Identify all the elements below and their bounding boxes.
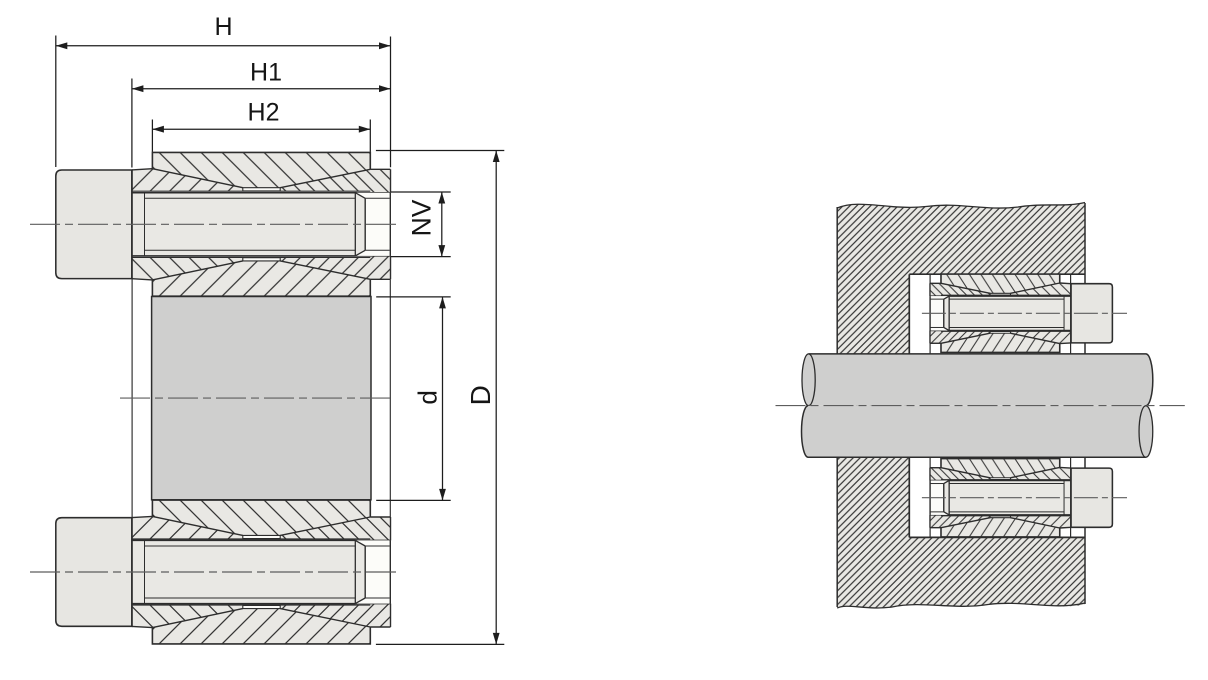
svg-text:H: H (214, 13, 232, 41)
svg-text:D: D (465, 385, 496, 405)
svg-text:H1: H1 (250, 59, 282, 87)
svg-text:d: d (413, 390, 443, 404)
svg-text:H2: H2 (248, 99, 280, 127)
svg-text:NV: NV (407, 199, 437, 236)
